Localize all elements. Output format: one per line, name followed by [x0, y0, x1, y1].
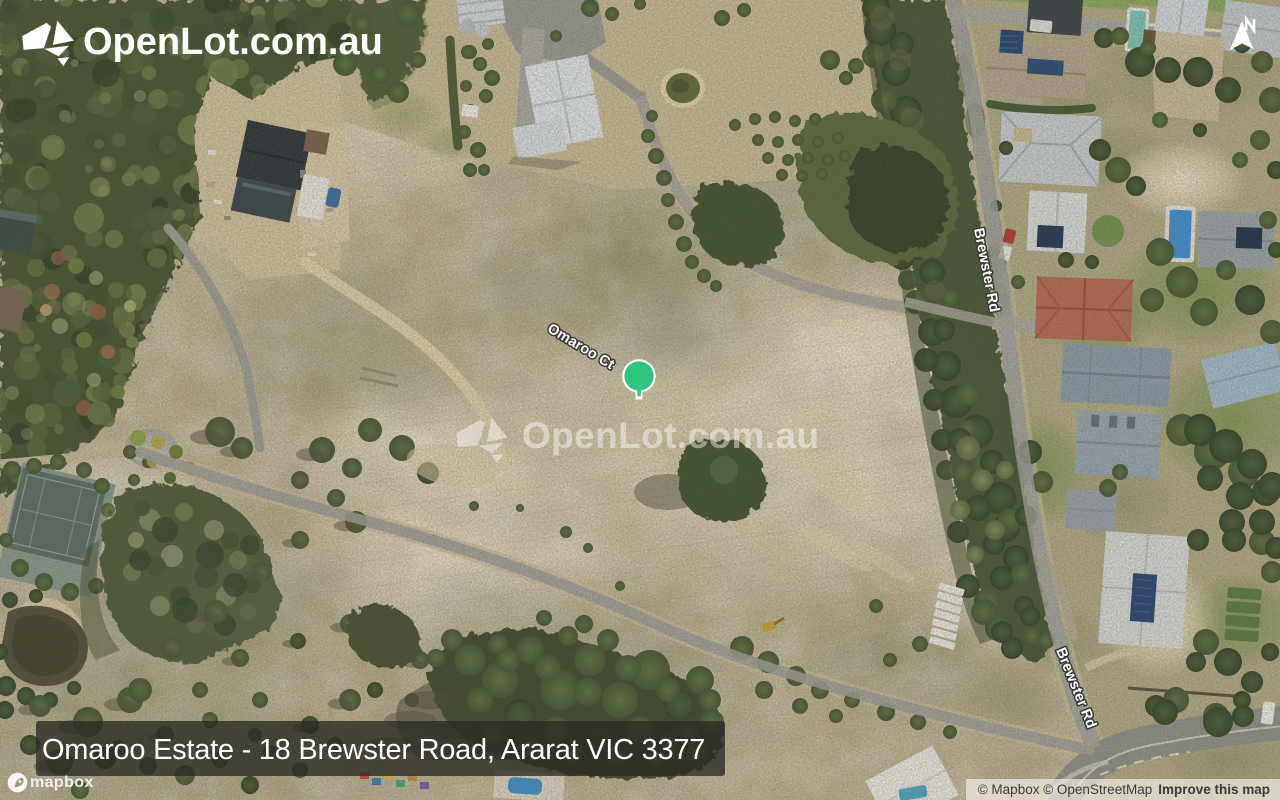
svg-text:Brewster Rd: Brewster Rd [970, 227, 1002, 314]
svg-text:Brewster Rd: Brewster Rd [1052, 646, 1099, 731]
svg-text:Omaroo Ct: Omaroo Ct [544, 321, 617, 373]
